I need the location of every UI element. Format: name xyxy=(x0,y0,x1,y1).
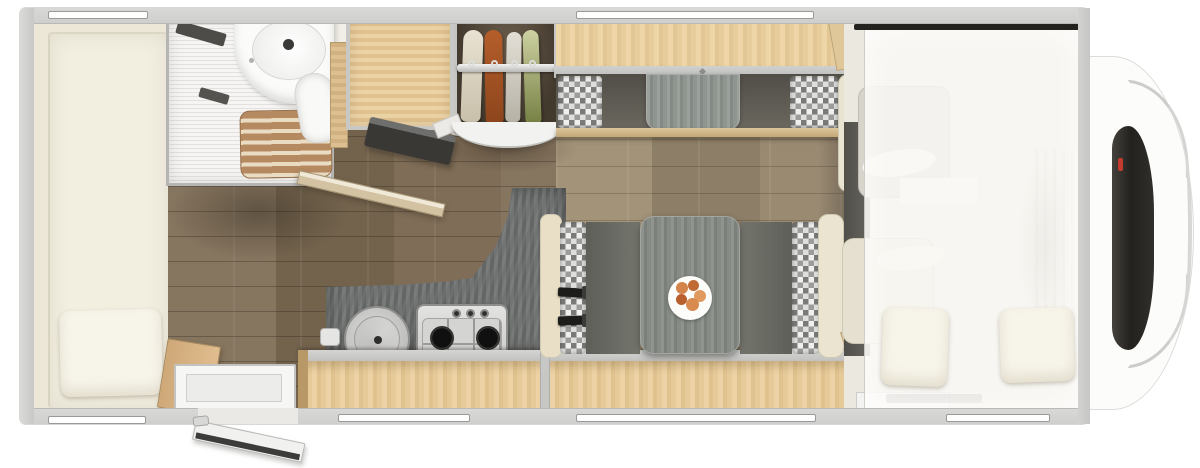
roof-window xyxy=(48,11,148,19)
hanger-hook xyxy=(468,60,475,67)
hob-knob xyxy=(466,309,475,318)
dinette-bench-right xyxy=(740,222,792,354)
wall-bottom xyxy=(28,408,1088,424)
entry-step xyxy=(174,364,296,412)
hob-burner xyxy=(476,326,500,350)
vanity-knob xyxy=(249,58,254,63)
wall-rear xyxy=(20,8,34,424)
sofa-cushion-checkered xyxy=(790,76,838,128)
hanger-hook xyxy=(491,60,498,67)
sink-drain xyxy=(374,336,382,344)
drop-down-bed-pillow xyxy=(999,307,1076,384)
folded-table-leaf xyxy=(646,74,740,130)
food-item xyxy=(676,282,688,294)
hanger-hook xyxy=(511,60,518,67)
hanging-garment-cream xyxy=(460,30,483,123)
hanging-garment-orange xyxy=(484,30,504,124)
motorhome-floorplan xyxy=(0,0,1200,468)
entry-step-tread xyxy=(186,374,282,402)
washbasin xyxy=(252,20,326,80)
roof-window xyxy=(576,414,816,422)
hanger-hook xyxy=(529,60,536,67)
sofa-cushion-checkered xyxy=(558,76,602,128)
sideboard-end xyxy=(298,350,308,412)
entry-door-opening xyxy=(198,408,298,424)
wall-top xyxy=(28,8,1088,24)
entry-door-seal xyxy=(195,432,300,460)
fridge-cabinet xyxy=(346,14,454,130)
roof-window xyxy=(946,414,1050,422)
dinette-bench-left xyxy=(586,222,640,354)
roof-window xyxy=(576,11,814,19)
front-bumper-trim xyxy=(1174,148,1192,312)
sideboard-divider xyxy=(540,350,550,412)
drop-down-bed-edge xyxy=(854,24,1082,30)
drop-down-bed-pillow xyxy=(881,307,950,387)
entry-door-handle xyxy=(192,415,209,427)
food-item xyxy=(686,298,699,311)
dinette-backrest-checkered xyxy=(792,222,820,354)
dinette-bench-frame xyxy=(540,214,562,358)
dinette-bench-frame xyxy=(818,214,844,358)
entry-door-open xyxy=(192,420,306,463)
hanging-garment-green xyxy=(522,30,541,125)
hob-knob xyxy=(452,309,461,318)
plate-of-food xyxy=(668,276,712,320)
sofa-front-edge xyxy=(556,128,844,137)
rear-bed-pillow xyxy=(59,309,163,398)
front-badge xyxy=(1118,158,1123,171)
roof-window xyxy=(338,414,470,422)
roof-window xyxy=(48,416,146,424)
faucet xyxy=(283,39,294,50)
wall-front xyxy=(1078,8,1090,424)
hanging-garment-white xyxy=(505,32,522,122)
hob-burner xyxy=(430,326,454,350)
sink-lid-hinge xyxy=(320,328,340,346)
hob-knob xyxy=(480,309,489,318)
sideboard xyxy=(298,361,858,412)
